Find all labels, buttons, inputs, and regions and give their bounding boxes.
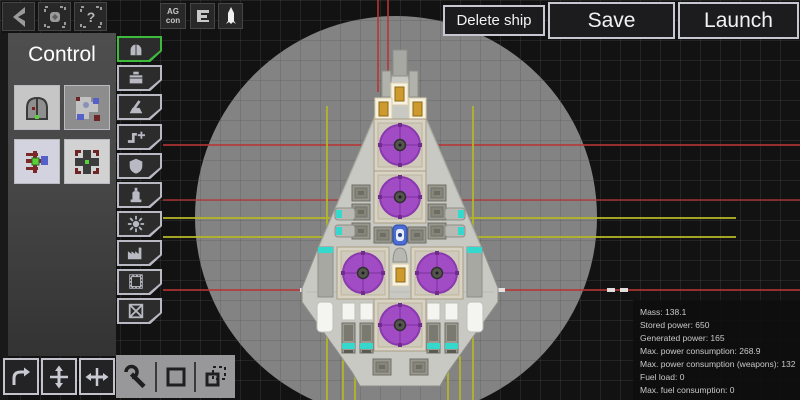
launch-button[interactable]: Launch — [678, 2, 799, 39]
power-burst-icon — [125, 215, 147, 233]
category-title: Control — [8, 43, 116, 67]
launch-label: Launch — [704, 9, 773, 33]
flip-vertical-button[interactable] — [41, 358, 77, 395]
machinery-part[interactable] — [352, 185, 370, 201]
ship-stats-panel: Mass138.1 Stored power650 Generated powe… — [633, 300, 800, 400]
blue-component[interactable] — [393, 225, 407, 245]
window-part[interactable] — [391, 83, 408, 105]
ag-label-top: AG — [167, 7, 179, 16]
reactor-part[interactable] — [411, 247, 463, 299]
question-mark-glyph: ? — [86, 9, 95, 25]
shield-icon — [125, 157, 147, 175]
side-pod[interactable] — [317, 247, 333, 332]
part-control-module[interactable] — [64, 85, 110, 130]
machinery-part[interactable] — [428, 185, 446, 201]
gyroscope-icon — [70, 145, 104, 179]
engine-part[interactable] — [427, 323, 440, 353]
antenna[interactable] — [409, 71, 418, 97]
part-cockpit[interactable] — [14, 85, 60, 130]
factory-icon — [125, 244, 147, 262]
machinery-part[interactable] — [373, 359, 391, 375]
guide-tick — [607, 288, 615, 292]
configure-button[interactable] — [123, 364, 149, 390]
remove-x-icon — [125, 302, 147, 320]
wrench-icon — [123, 364, 149, 390]
ship-design[interactable] — [290, 45, 510, 395]
reactor-part[interactable] — [374, 119, 426, 171]
machinery-part[interactable] — [408, 227, 426, 243]
thruster-control-icon — [20, 145, 54, 179]
crate-icon — [125, 69, 147, 87]
ag-label-bottom: con — [166, 16, 180, 25]
left-edge-strip — [0, 33, 8, 400]
dome-part[interactable] — [393, 248, 407, 262]
delete-ship-label: Delete ship — [456, 12, 531, 29]
antenna[interactable] — [382, 71, 391, 97]
window-part[interactable] — [392, 264, 409, 286]
dome-icon — [125, 40, 147, 58]
stat-stored-power: Stored power650 — [640, 319, 800, 332]
back-button[interactable] — [2, 2, 35, 31]
rocket-icon — [223, 7, 239, 25]
copy-selection-icon — [203, 364, 229, 390]
window-part[interactable] — [409, 98, 426, 120]
ship-view-button[interactable] — [218, 3, 243, 29]
rotate-button[interactable] — [3, 358, 39, 395]
stat-max-power: Max. power consumption268.9 — [640, 345, 800, 358]
help-button[interactable]: ? — [74, 2, 107, 31]
ship-builder-screen: { "colors": { "accent_green": "#3dbb3d",… — [0, 0, 800, 400]
category-panel: Control — [8, 33, 116, 356]
stats-toggle-button[interactable] — [190, 3, 215, 29]
engine-part[interactable] — [360, 323, 373, 353]
hull-frame-icon — [125, 273, 147, 291]
turret-icon — [125, 98, 147, 116]
save-button[interactable]: Save — [548, 2, 675, 39]
part-thruster-control[interactable] — [14, 139, 60, 184]
crop-target-icon — [43, 5, 67, 29]
flip-horizontal-icon — [85, 365, 109, 389]
stat-max-fuel: Max. fuel consumption0 — [640, 384, 800, 397]
ag-control-button[interactable]: AG con — [160, 3, 186, 29]
flip-horizontal-button[interactable] — [79, 358, 115, 395]
reactor-part[interactable] — [374, 299, 426, 351]
help-frame-icon: ? — [79, 5, 103, 29]
edit-tools-panel — [116, 355, 235, 398]
reactor-part[interactable] — [337, 247, 389, 299]
machinery-part[interactable] — [428, 223, 446, 239]
window-part[interactable] — [375, 98, 392, 120]
save-label: Save — [588, 9, 636, 33]
delete-ship-button[interactable]: Delete ship — [443, 5, 545, 36]
machinery-part[interactable] — [374, 227, 392, 243]
separator — [155, 362, 157, 392]
square-outline-icon — [164, 365, 188, 389]
fuel-tank-icon — [125, 186, 147, 204]
part-gyroscope[interactable] — [64, 139, 110, 184]
stairs-icon — [195, 8, 211, 24]
flip-vertical-icon — [47, 365, 71, 389]
copy-selection-button[interactable] — [203, 364, 229, 390]
machinery-part[interactable] — [410, 359, 428, 375]
nose-block[interactable] — [393, 50, 407, 76]
pipe-icon — [125, 128, 147, 146]
engine-part[interactable] — [445, 323, 458, 353]
select-area-button[interactable] — [164, 365, 188, 389]
machinery-part[interactable] — [428, 204, 446, 220]
stat-max-power-weapons: Max. power consumption (weapons)132 — [640, 358, 800, 371]
rotate-icon — [9, 365, 33, 389]
reactor-part[interactable] — [374, 171, 426, 223]
side-pod[interactable] — [467, 247, 483, 332]
stat-fuel-load: Fuel load0 — [640, 371, 800, 384]
cockpit-icon — [20, 91, 54, 125]
control-module-icon — [70, 91, 104, 125]
chevron-left-icon — [9, 6, 29, 28]
guide-tick — [620, 288, 628, 292]
stat-mass: Mass138.1 — [640, 306, 800, 319]
engine-part[interactable] — [342, 323, 355, 353]
separator — [194, 362, 196, 392]
stat-generated-power: Generated power165 — [640, 332, 800, 345]
center-view-button[interactable] — [38, 2, 71, 31]
